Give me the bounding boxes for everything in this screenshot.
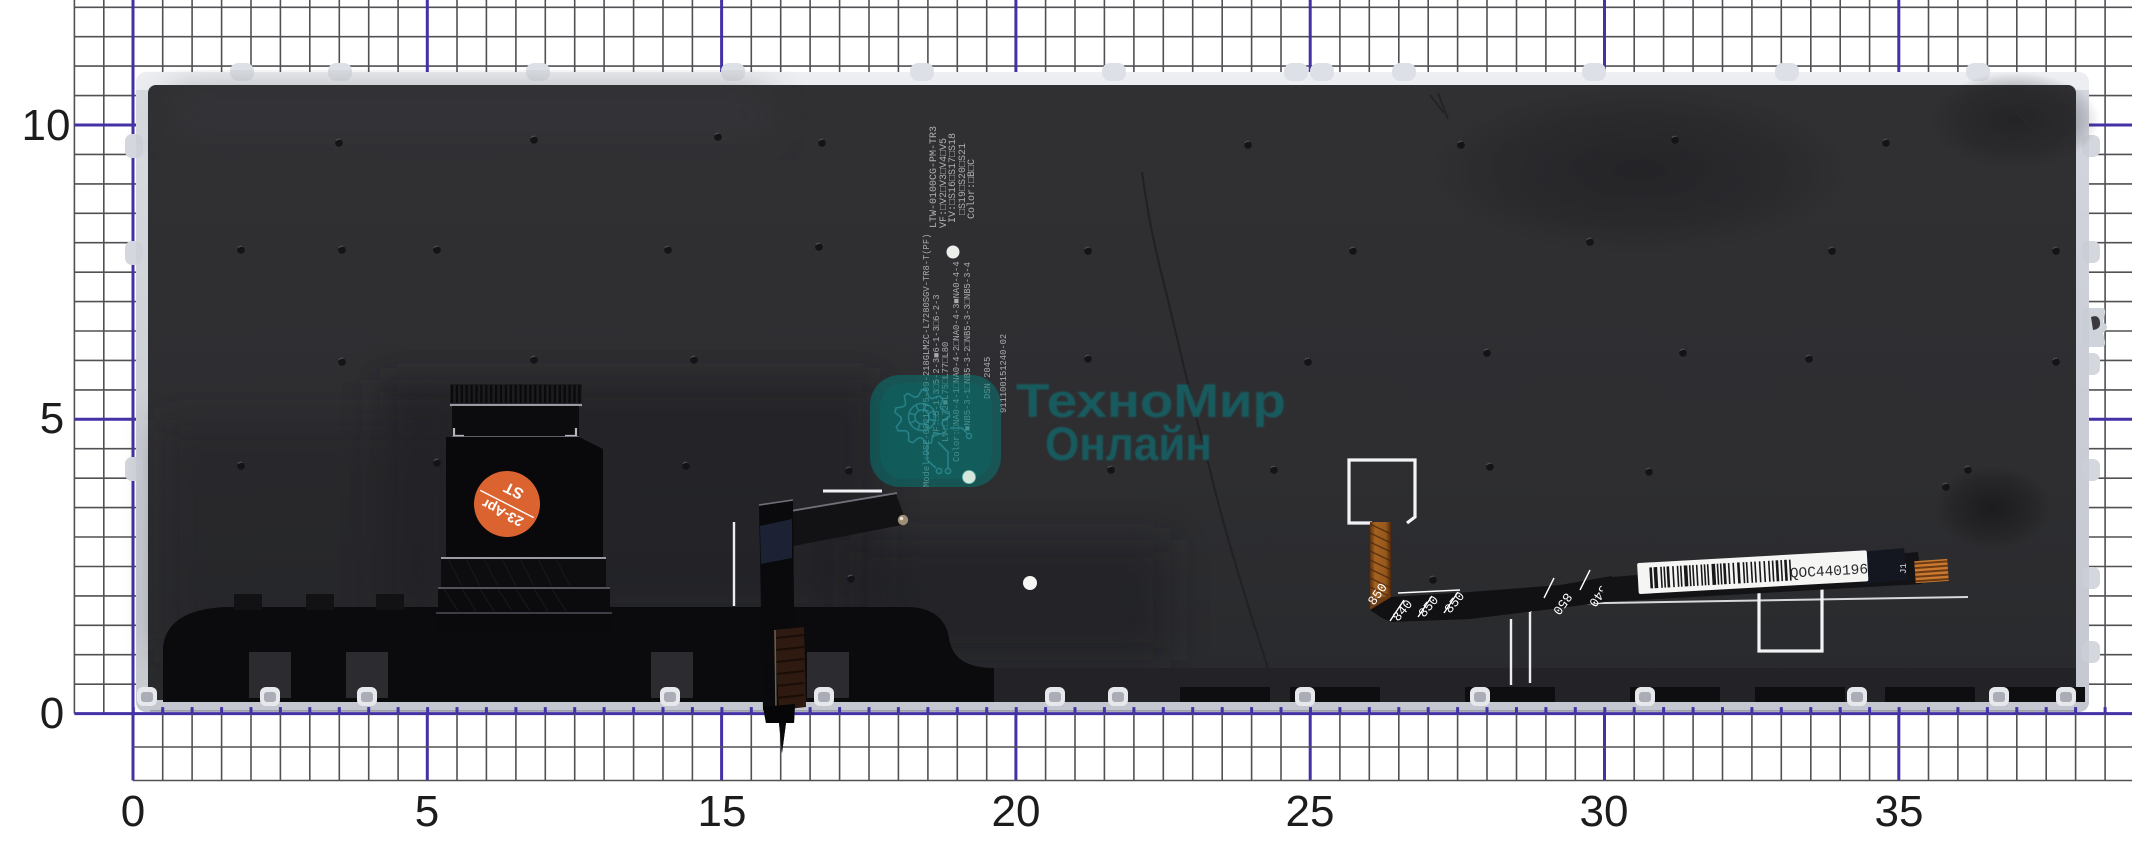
svg-text:J1: J1 <box>1899 563 1909 574</box>
svg-text:35: 35 <box>1875 787 1924 836</box>
svg-text:10: 10 <box>22 101 71 150</box>
svg-text:0: 0 <box>121 787 145 836</box>
svg-text:25: 25 <box>1286 787 1335 836</box>
svg-text:5: 5 <box>40 394 64 443</box>
svg-text:30: 30 <box>1580 787 1629 836</box>
svg-text:0: 0 <box>40 689 64 738</box>
svg-text:15: 15 <box>698 787 747 836</box>
svg-text:5: 5 <box>415 787 439 836</box>
svg-text:Color:□B□C: Color:□B□C <box>966 159 978 219</box>
svg-text:Онлайн: Онлайн <box>1045 417 1212 470</box>
svg-text:20: 20 <box>992 787 1041 836</box>
